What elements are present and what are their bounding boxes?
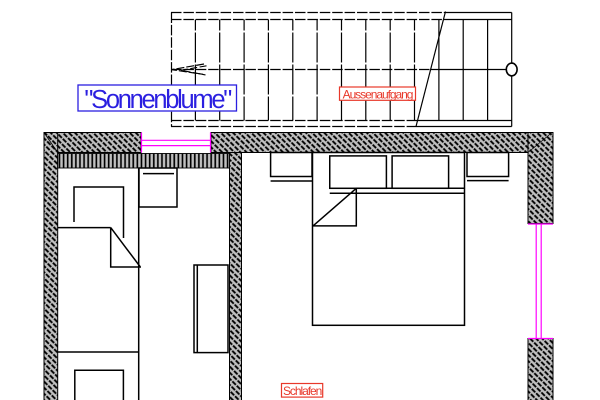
svg-text:Aussenaufgang: Aussenaufgang (343, 87, 413, 101)
svg-text:Schlafen: Schlafen (283, 384, 322, 398)
svg-text:"Sonnenblume": "Sonnenblume" (84, 86, 231, 114)
